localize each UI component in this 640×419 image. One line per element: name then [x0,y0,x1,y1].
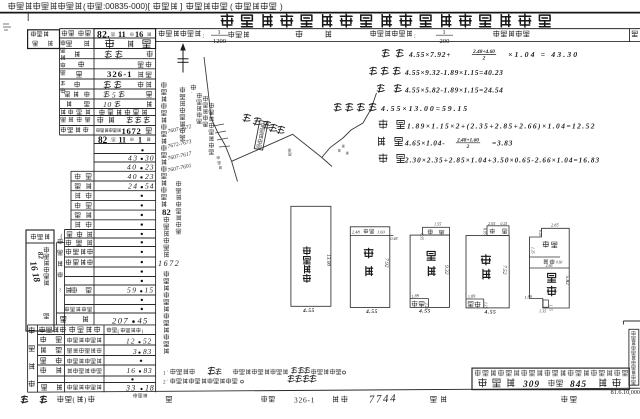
svg-text:83: 83 [143,347,152,356]
svg-text:1.35: 1.35 [531,247,535,254]
svg-text:82.: 82. [97,30,110,40]
svg-text:81.6.10,000: 81.6.10,000 [611,389,640,396]
svg-text:`: ` [167,371,169,377]
svg-text:59: 59 [127,286,138,295]
svg-text:2.05: 2.05 [488,221,495,226]
svg-text:]: ] [180,1,182,11]
svg-text:4.55×9.32-1.89×1.15=40.23: 4.55×9.32-1.89×1.15=40.23 [404,68,503,77]
svg-text:0.25: 0.25 [501,222,508,226]
svg-text:7744: 7744 [369,393,398,406]
svg-text:54: 54 [145,182,155,191]
svg-text:11: 11 [119,136,127,145]
svg-text:7.92: 7.92 [383,258,389,268]
svg-text:309: 309 [522,380,540,390]
svg-text:): ) [280,2,283,11]
svg-text:10: 10 [103,100,112,109]
svg-text:1: 1 [138,136,142,145]
svg-text:0.95: 0.95 [420,234,424,241]
svg-text:13.00: 13.00 [325,254,331,266]
svg-text:0.48: 0.48 [391,236,398,241]
svg-text:23: 23 [145,172,155,181]
svg-text:1.55: 1.55 [434,221,441,226]
svg-text:): ) [142,328,144,335]
svg-text:(: ( [118,328,120,335]
svg-text:0.95: 0.95 [483,228,487,235]
svg-text:30: 30 [144,153,155,162]
svg-text:2.85: 2.85 [551,223,559,228]
svg-text:326-1: 326-1 [107,69,133,79]
svg-text:82: 82 [162,207,171,217]
svg-text:1.35: 1.35 [539,309,546,314]
svg-text:(: ( [61,233,63,240]
svg-text::00835-000)[: :00835-000)[ [103,1,151,11]
svg-text:16: 16 [127,366,136,375]
svg-text:82: 82 [36,251,45,260]
svg-text:1.60: 1.60 [377,230,385,235]
svg-text:1672: 1672 [158,259,180,268]
svg-text:): ) [84,397,86,404]
svg-text:5: 5 [112,90,116,99]
svg-text:0.25: 0.25 [538,230,542,236]
svg-text:1672: 1672 [122,126,142,136]
svg-text:40: 40 [128,172,139,181]
svg-text:4.55×5.82-1.89×1.15=24.54: 4.55×5.82-1.89×1.15=24.54 [404,86,503,95]
svg-text:4.55: 4.55 [365,309,378,315]
svg-text:4.55: 4.55 [418,309,431,315]
svg-text:7.52: 7.52 [501,265,507,275]
svg-text:(: ( [230,2,233,11]
svg-text:1.89×1.15×2+(2.35+2.85+2.66)×1: 1.89×1.15×2+(2.35+2.85+2.66)×1.04=12.52 [407,122,596,131]
svg-text:52: 52 [143,337,152,346]
svg-text:83: 83 [144,366,153,375]
svg-text:16: 16 [135,30,143,39]
svg-text:4.55×13.00=59.15: 4.55×13.00=59.15 [380,104,469,113]
svg-text:40: 40 [127,163,138,172]
svg-text:2: 2 [466,144,470,150]
svg-text:1.15: 1.15 [483,302,487,309]
svg-text:9.32: 9.32 [443,265,449,275]
svg-text:`: ` [167,380,169,386]
svg-text:4.55×7.92+: 4.55×7.92+ [408,50,451,59]
svg-text:12: 12 [126,337,135,346]
svg-text:2: 2 [482,56,486,62]
svg-text::: : [203,33,205,40]
svg-text:1.15: 1.15 [549,305,553,311]
svg-text:2.66: 2.66 [546,263,553,268]
svg-text:=3.83: =3.83 [492,139,513,148]
svg-text:207: 207 [112,315,129,325]
svg-text:2.30×2.35+2.85×1.04+3.50×0.65-: 2.30×2.35+2.85×1.04+3.50×0.65-2.66×1.04=… [404,157,600,165]
svg-text:326-1: 326-1 [294,395,315,404]
svg-text:×1.04 = 43.30: ×1.04 = 43.30 [508,50,579,59]
svg-text:2.48: 2.48 [352,230,360,235]
svg-text:4.55: 4.55 [302,308,315,314]
svg-text:(: ( [83,2,86,11]
svg-text:4.65×1.04-: 4.65×1.04- [404,139,446,148]
svg-text:5.82: 5.82 [564,276,570,286]
svg-text:4.55: 4.55 [484,309,497,315]
svg-text:11: 11 [118,30,126,39]
svg-text:43: 43 [128,153,139,162]
svg-text:3: 3 [132,347,137,356]
svg-text:~: ~ [56,288,63,292]
svg-text:0.60: 0.60 [556,261,562,265]
svg-text::: : [414,33,416,40]
svg-text:82: 82 [98,135,108,145]
svg-text:24: 24 [128,182,139,191]
svg-text:23: 23 [145,163,155,172]
svg-text:45: 45 [138,315,149,325]
svg-text:15: 15 [145,286,155,295]
